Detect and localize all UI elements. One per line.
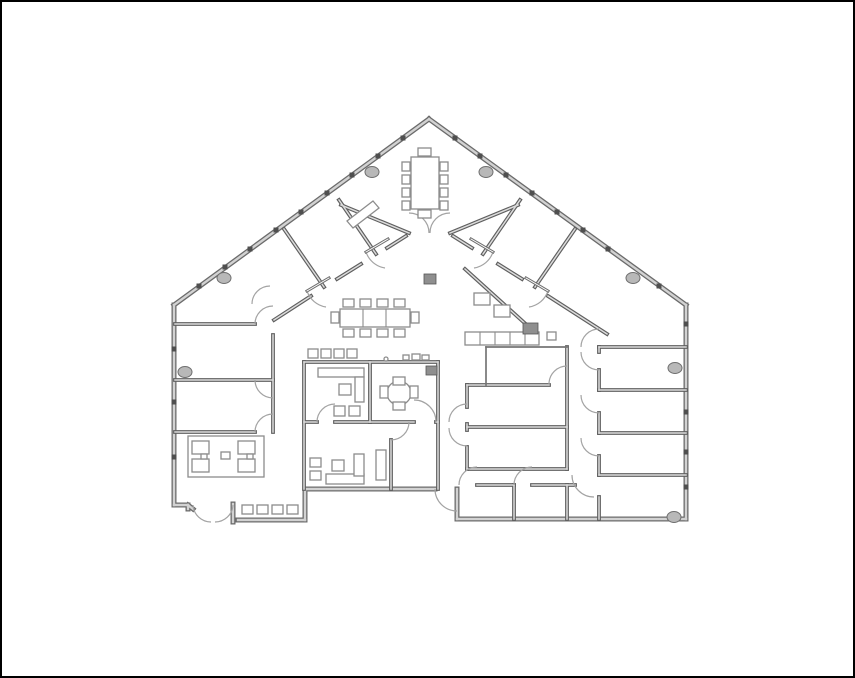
door-arc	[255, 414, 273, 432]
door-arc	[193, 505, 211, 522]
wall-tick	[197, 284, 202, 289]
conference-chair	[440, 201, 448, 210]
conference-chair	[402, 162, 410, 171]
storage-box	[494, 305, 510, 317]
kitchen-appliance	[403, 355, 409, 360]
interior-wall-core	[498, 264, 522, 279]
storage-box	[547, 332, 556, 340]
conference-chair	[402, 175, 410, 184]
wall-tick	[555, 210, 560, 215]
guest-chair	[310, 471, 321, 480]
break-chair	[343, 299, 354, 307]
lounge-armchair	[192, 459, 209, 472]
wall-tick	[684, 450, 689, 455]
lounge-armchair	[192, 441, 209, 454]
column	[178, 367, 192, 378]
floor-plan-image-frame	[0, 0, 855, 678]
column	[479, 167, 493, 178]
floor-plan	[2, 2, 855, 678]
conference-chair	[440, 175, 448, 184]
break-chair	[377, 299, 388, 307]
column	[365, 167, 379, 178]
door-arc	[391, 422, 409, 440]
office-desk	[355, 377, 364, 402]
wall-tick	[172, 400, 177, 405]
door-arc	[449, 428, 467, 446]
wall-tick	[606, 247, 611, 252]
wall-tick	[453, 136, 458, 141]
wall-tick	[350, 173, 355, 178]
round-table-chair	[380, 386, 388, 398]
equipment-block	[424, 274, 436, 284]
door-arc	[449, 404, 467, 422]
break-chair	[394, 299, 405, 307]
conference-chair	[440, 188, 448, 197]
conference-table	[411, 157, 439, 209]
door-arc	[529, 291, 548, 307]
door-arc	[572, 475, 594, 497]
door-arc	[215, 505, 233, 522]
interior-wall-core	[387, 236, 406, 248]
door-arc	[581, 438, 599, 456]
door-arc	[252, 286, 270, 304]
wall-tick	[504, 173, 509, 178]
guest-chair	[310, 458, 321, 467]
entry-chair	[287, 505, 298, 514]
lounge-armchair	[238, 441, 255, 454]
door-arc	[430, 213, 450, 233]
door-arc	[414, 400, 436, 422]
interior-wall-core	[453, 236, 472, 248]
break-chair	[331, 312, 339, 323]
office-chair	[339, 384, 351, 395]
guest-chair	[349, 406, 360, 416]
wall-tick	[657, 284, 662, 289]
column	[626, 273, 640, 284]
interior-wall-core	[548, 296, 607, 334]
wall-tick	[376, 154, 381, 159]
round-table-chair	[393, 377, 405, 385]
wall-tick	[274, 228, 279, 233]
break-chair	[411, 312, 419, 323]
interior-wall-core	[337, 264, 361, 279]
round-table-chair	[393, 402, 405, 410]
counter-stool	[347, 349, 357, 358]
wall-tick	[684, 410, 689, 415]
break-chair	[360, 329, 371, 337]
conference-chair	[402, 201, 410, 210]
counter-stool	[321, 349, 331, 358]
door-leaf-core	[526, 278, 548, 291]
conference-chair	[418, 210, 431, 218]
break-table	[340, 309, 410, 327]
kitchen-appliance	[412, 354, 420, 360]
interior-wall-core	[535, 229, 575, 287]
interior-wall-core	[284, 229, 324, 287]
break-chair	[343, 329, 354, 337]
office-desk	[354, 454, 364, 476]
wall-tick	[684, 485, 689, 490]
lounge-side-table	[247, 454, 253, 459]
round-table-chair	[410, 386, 418, 398]
interior-wall-core	[274, 296, 311, 320]
equipment-blocks	[424, 274, 538, 375]
conference-chair	[418, 148, 431, 156]
lounge-armchair	[238, 459, 255, 472]
lounge-side-table	[201, 454, 207, 459]
lounge-table	[221, 452, 230, 459]
office-desk	[318, 368, 364, 377]
door-arc	[317, 404, 335, 422]
office-chair	[332, 460, 344, 471]
storage-box	[474, 293, 490, 305]
break-chair	[377, 329, 388, 337]
column	[667, 512, 681, 523]
wall-tick	[223, 265, 228, 270]
counter-stool	[308, 349, 318, 358]
wall-tick	[581, 228, 586, 233]
break-chair	[394, 329, 405, 337]
wall-tick	[172, 455, 177, 460]
door-arc	[581, 395, 599, 413]
door-arc	[255, 306, 273, 324]
whiteboard	[347, 201, 379, 228]
column	[217, 273, 231, 284]
kitchen-knob	[384, 357, 388, 361]
door-arc	[255, 380, 273, 398]
equipment-block	[523, 323, 538, 334]
entry-chair	[257, 505, 268, 514]
cabinet	[376, 450, 386, 480]
wall-tick	[325, 191, 330, 196]
wall-tick	[401, 136, 406, 141]
conference-chair	[402, 188, 410, 197]
conference-chair	[440, 162, 448, 171]
partition-walls	[486, 347, 567, 385]
door-arc	[581, 352, 599, 370]
entry-chair	[242, 505, 253, 514]
furniture	[188, 148, 556, 514]
equipment-block	[426, 366, 437, 375]
break-chair	[360, 299, 371, 307]
wall-tick	[248, 247, 253, 252]
wall-tick	[478, 154, 483, 159]
wall-tick	[530, 191, 535, 196]
wall-tick	[684, 322, 689, 327]
wall-tick	[299, 210, 304, 215]
door-arc	[435, 489, 457, 511]
kitchen-appliance	[422, 355, 429, 360]
guest-chair	[334, 406, 345, 416]
door-arc	[581, 329, 599, 347]
door-arc	[549, 366, 567, 384]
counter-stool	[334, 349, 344, 358]
interior-wall-core	[483, 200, 520, 254]
wall-tick	[172, 347, 177, 352]
entry-chair	[272, 505, 283, 514]
column	[668, 363, 682, 374]
